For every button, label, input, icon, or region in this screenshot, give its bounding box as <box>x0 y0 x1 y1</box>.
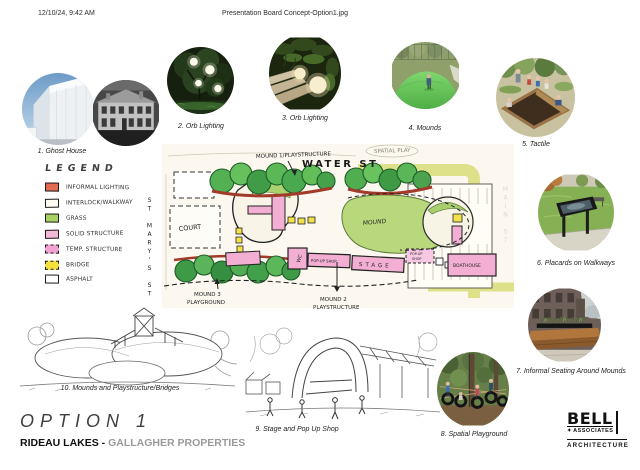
legend-swatch-temp-structure <box>45 244 59 253</box>
legend-swatch-informal-lighting <box>45 183 59 192</box>
temp-popup-label-1: POP-UP <box>410 252 422 256</box>
caption-orb-lighting-3: 3. Orb Lighting <box>272 115 338 122</box>
logo-associates-text: ASSOCIATES <box>573 428 613 434</box>
photo-ghost-house-modern <box>22 73 94 145</box>
caption-orb-lighting-2: 2. Orb Lighting <box>168 123 234 130</box>
caption-ghost-house: 1. Ghost House <box>12 148 112 155</box>
project-title: RIDEAU LAKES - GALLAGHER PROPERTIES <box>20 437 245 449</box>
photo-spatial-playground <box>437 352 509 427</box>
print-timestamp: 12/10/24, 9:42 AM <box>38 10 95 17</box>
legend-swatch-solid-structure <box>45 230 59 239</box>
legend-swatch-interlock <box>45 199 59 208</box>
informal-seating-illustration <box>528 288 601 362</box>
option-title: OPTION 1 <box>20 411 152 432</box>
mound3-label-1: MOUND 3 <box>194 292 221 298</box>
temp-popup-label-2: SHOP <box>412 257 421 261</box>
photo-mounds <box>390 42 461 109</box>
logo-associates-row: ✦ASSOCIATES <box>567 426 613 434</box>
spatial-playground-illustration <box>437 352 509 427</box>
ghost-house-grayscale-illustration <box>92 80 160 146</box>
caption-placards: 6. Placards on Walkways <box>528 260 624 267</box>
legend-title: LEGEND <box>44 163 168 174</box>
photo-orb-lighting-tree <box>167 47 234 114</box>
photo-informal-seating <box>528 288 601 362</box>
popup-stalls <box>246 372 280 394</box>
street-label-st-marys: ST MARY'S ST <box>146 197 153 283</box>
boathouse-block: BOATHOUSE <box>448 254 496 276</box>
orb-lighting-garden-illustration <box>269 34 341 113</box>
tactile-illustration <box>496 58 575 137</box>
photo-placards <box>538 173 614 252</box>
legend-label: BRIDGE <box>66 262 90 268</box>
caption-mounds-playstructure: 10. Mounds and Playstructure/Bridges <box>40 385 200 392</box>
legend-swatch-bridge <box>45 261 59 270</box>
caption-stage-popup: 9. Stage and Pop Up Shop <box>232 426 362 433</box>
legend-label: GRASS <box>66 215 87 221</box>
placards-illustration <box>538 173 614 252</box>
water-st-label: WATER ST <box>302 159 378 170</box>
legend-label: INFORMAL LIGHTING <box>66 184 129 191</box>
pink-strip <box>226 251 261 266</box>
stage-block: STAGE <box>352 256 405 273</box>
mounds-illustration <box>390 42 461 109</box>
site-plan-drawing: PARKING COURT MOUND WC POP-UP SHOP STAGE <box>160 140 522 312</box>
caption-informal-seating: 7. Informal Seating Around Mounds <box>515 368 627 375</box>
project-dash: - <box>99 437 108 449</box>
sketch-stage-popup <box>240 302 445 424</box>
mound2-playstructure <box>423 197 473 247</box>
caption-mounds: 4. Mounds <box>392 125 458 132</box>
print-filename: Presentation Board Concept-Option1.jpg <box>222 10 348 17</box>
legend-swatch-asphalt <box>45 275 59 284</box>
canopy <box>360 346 436 398</box>
wc-block: WC <box>288 248 307 269</box>
popup-shop-label: POP-UP SHOP <box>311 258 338 264</box>
photo-orb-lighting-garden <box>269 34 341 113</box>
legend-swatch-grass <box>45 213 59 222</box>
logo-top: BELL ✦ASSOCIATES <box>567 411 618 434</box>
legend-label: SOLID STRUCTURE <box>66 231 124 238</box>
temp-popup-block: POP-UP SHOP <box>406 249 434 263</box>
project-name: RIDEAU LAKES <box>20 437 99 449</box>
stage-shell <box>292 338 368 398</box>
legend-label: TEMP. STRUCTURE <box>66 246 123 252</box>
logo-architecture-text: ARCHITECTURE <box>567 439 627 449</box>
logo-bell-text: BELL <box>567 411 613 426</box>
site-plan: PARKING COURT MOUND WC POP-UP SHOP STAGE <box>160 140 522 312</box>
photo-tactile <box>496 58 575 137</box>
legend-label: INTERLOCK/WALKWAY <box>66 200 133 207</box>
sketch-stage-drawing <box>240 302 445 424</box>
orb-lighting-tree-illustration <box>167 47 234 114</box>
caption-spatial-playground: 8. Spatial Playground <box>435 431 513 438</box>
bell-associates-logo: BELL ✦ASSOCIATES ARCHITECTURE <box>567 411 627 449</box>
figures <box>267 396 365 419</box>
ghost-house-modern-illustration <box>22 73 94 145</box>
boathouse-label: BOATHOUSE <box>453 263 481 269</box>
photo-ghost-house-grayscale <box>92 80 160 146</box>
client-name: GALLAGHER PROPERTIES <box>108 437 245 449</box>
popup-shop-block: POP-UP SHOP <box>308 253 350 267</box>
legend-label: ASPHALT <box>66 277 93 283</box>
plus-star-icon: ✦ <box>567 428 572 434</box>
